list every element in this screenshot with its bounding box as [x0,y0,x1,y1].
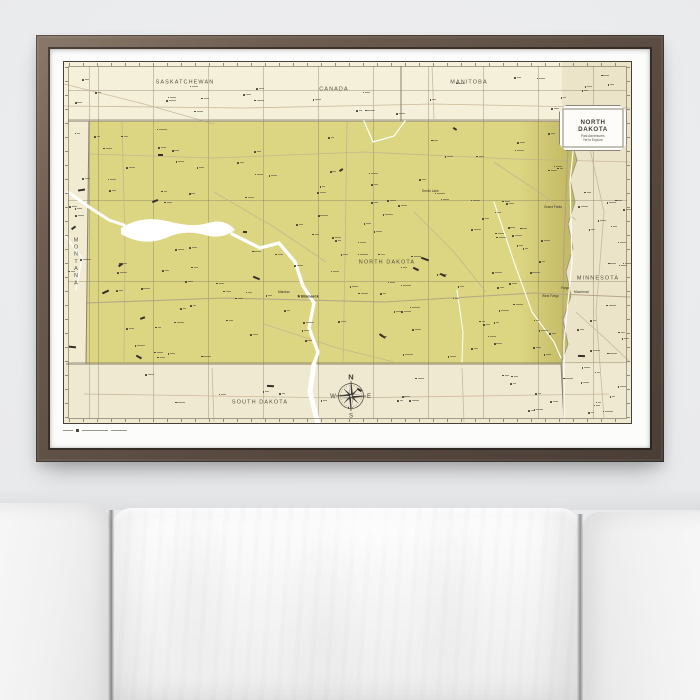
label-north-dakota: NORTH DAKOTA [359,259,415,265]
city-west-fargo: West Fargo [542,294,559,298]
city-devils-lake: Devils Lake [422,189,439,193]
wall-shading [0,486,700,510]
legend-item-yet-to-explore: Yet to Explore [583,138,603,139]
compass-rose-icon: N E S W [329,374,373,418]
compass-s: S [349,414,353,419]
tick-marks-right [627,67,630,418]
north-dakota-map: SASKATCHEWAN CANADA MANITOBA MONTANA NOR… [63,61,632,424]
tick-marks-left [65,67,68,418]
label-minnesota: MINNESOTA [577,275,619,281]
tick-marks-bottom [69,419,626,422]
city-moorhead: Moorhead [574,290,589,294]
legend-title: NORTH DAKOTA [578,119,608,133]
city-mandan: Mandan [278,290,290,294]
legend-item-past-adventures: Past Adventures [581,134,605,135]
cushion-gap-right [577,514,583,700]
compass-e: E [367,394,371,400]
label-canada: CANADA [319,86,349,92]
room-scene: SASKATCHEWAN CANADA MANITOBA MONTANA NOR… [0,0,700,700]
couch-cushion-middle [112,508,580,700]
label-manitoba: MANITOBA [450,79,487,85]
city-grand-forks: Grand Forks [544,205,562,209]
couch-cushion-left [0,503,112,700]
legend-box: NORTH DAKOTA Past Adventures Yet to Expl… [559,105,627,151]
couch-cushion-right [582,512,700,700]
copyright-fineprint [63,429,127,432]
map-neatline [68,66,627,419]
picture-frame: SASKATCHEWAN CANADA MANITOBA MONTANA NOR… [36,35,664,462]
label-montana: MONTANA [73,237,79,287]
city-bismarck: ★ Bismarck [297,294,319,298]
cushion-wrinkles [112,508,580,700]
map-canvas: SASKATCHEWAN CANADA MANITOBA MONTANA NOR… [50,49,650,448]
label-south-dakota: SOUTH DAKOTA [232,399,288,405]
cushion-gap-left [108,510,114,700]
label-saskatchewan: SASKATCHEWAN [156,79,215,85]
compass-w: W [330,394,336,400]
compass-n: N [348,374,353,382]
tick-marks-top [69,63,626,66]
city-fargo: Fargo [561,286,569,290]
